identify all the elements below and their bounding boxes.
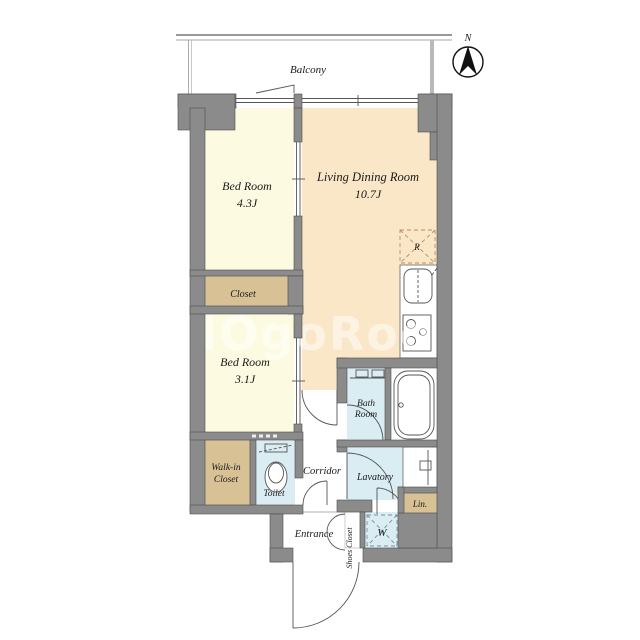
wall <box>250 440 256 505</box>
corridor-label: Corridor <box>303 466 342 477</box>
compass-needle <box>459 46 477 75</box>
toilet-door-arc <box>303 481 327 505</box>
watermark: HOgoRooM <box>179 307 482 361</box>
floor-plan-page: Balcony N <box>0 0 640 640</box>
wall <box>385 368 391 440</box>
bedroom2-size: 3.1J <box>234 372 256 386</box>
wall <box>294 94 302 108</box>
wall <box>190 505 303 514</box>
wall <box>337 440 437 447</box>
wall <box>190 270 303 276</box>
bath-label-line1: Bath <box>357 399 375 409</box>
washer-mark: W <box>377 527 387 539</box>
walkin-label-line1: Walk-in <box>211 463 240 473</box>
compass-north-icon <box>453 46 483 77</box>
wall <box>270 548 293 562</box>
wall <box>294 108 302 142</box>
toilet-bowl <box>265 462 287 492</box>
entrance-label: Entrance <box>294 529 334 540</box>
wall <box>294 314 302 338</box>
wall <box>178 94 235 130</box>
wall <box>337 358 437 368</box>
fridge-mark: R <box>413 242 420 252</box>
wall <box>398 487 404 513</box>
toilet-label: Toilet <box>263 489 285 499</box>
wall <box>295 440 303 478</box>
balcony-right-divider <box>430 40 434 94</box>
compass-label: N <box>464 33 473 44</box>
living-corridor-door-arc <box>302 390 337 425</box>
balcony-label: Balcony <box>290 64 326 76</box>
wall <box>294 216 302 276</box>
wall <box>190 432 303 440</box>
closet-label: Closet <box>230 289 256 300</box>
bedroom2-name: Bed Room <box>220 355 270 369</box>
vanity-sink-icon <box>403 447 437 488</box>
bathtub-outer <box>394 371 434 439</box>
bedroom1-window-flag <box>256 85 294 93</box>
wall <box>437 94 452 562</box>
bedroom1-size: 4.3J <box>237 196 258 210</box>
lavatory-label: Lavatory <box>356 472 394 483</box>
wall <box>190 306 303 314</box>
bedroom1-name: Bed Room <box>222 179 272 193</box>
living-name: Living Dining Room <box>316 170 419 184</box>
floor-plan: Balcony N <box>0 0 640 640</box>
shoes-closet-label: Shoes Closet <box>345 527 354 569</box>
walkin-label-line2: Closet <box>214 475 239 485</box>
wall <box>337 500 372 512</box>
entrance-door-arc <box>293 562 359 628</box>
linen-label: Lin. <box>412 499 427 509</box>
wall <box>363 548 452 562</box>
bath-label-line2: Room <box>354 410 377 420</box>
wall <box>398 513 437 548</box>
bathtub-icon <box>394 371 434 439</box>
living-size: 10.7J <box>355 187 382 201</box>
wall <box>360 512 365 548</box>
